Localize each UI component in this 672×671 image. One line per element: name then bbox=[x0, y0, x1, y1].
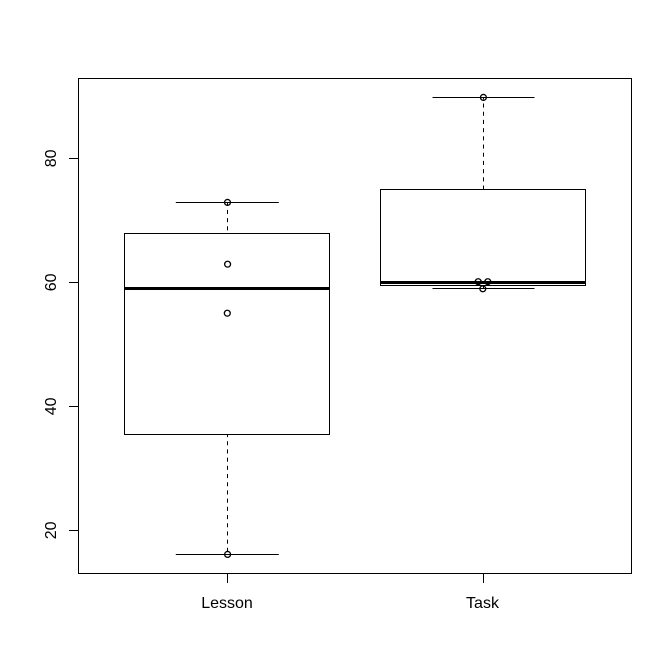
svg-text:Task: Task bbox=[466, 595, 500, 612]
svg-text:20: 20 bbox=[43, 521, 60, 539]
svg-text:Lesson: Lesson bbox=[201, 595, 253, 612]
svg-text:80: 80 bbox=[43, 149, 60, 167]
svg-text:60: 60 bbox=[43, 273, 60, 291]
svg-text:40: 40 bbox=[43, 397, 60, 415]
